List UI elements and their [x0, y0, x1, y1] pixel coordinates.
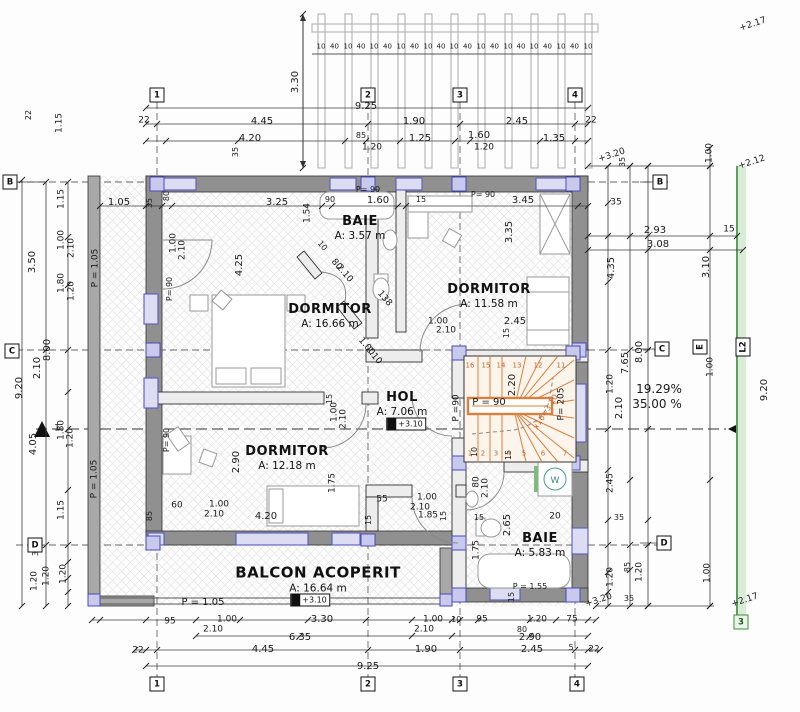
stair-tread-number: 1 [468, 451, 472, 458]
dim-label: 1.20 [43, 566, 52, 586]
dim-label: 1.00 [706, 143, 715, 163]
dim-label: 1.85 [418, 512, 438, 521]
room-label: DORMITORA: 11.58 m [447, 282, 531, 310]
room-label: BAIEA: 5.83 m [515, 531, 566, 559]
dim-label: 1.00 [417, 494, 437, 503]
pergola-dim-label: 10 [370, 44, 379, 51]
pergola-dim-label: 40 [463, 44, 472, 51]
room-label: BAIEA: 3.57 m [335, 214, 386, 242]
level-marker: +3.10 [290, 594, 330, 607]
room-label: DORMITORA: 12.18 m [245, 444, 329, 472]
dim-label: 80 [163, 191, 171, 201]
dim-label: 1.00 [217, 616, 237, 625]
level-marker: +3.10 [386, 418, 426, 431]
dim-label: P = 1.05 [92, 249, 101, 288]
dim-label: 15 [508, 592, 516, 602]
dim-label: 1.20 [362, 144, 382, 153]
dim-label: 35 [614, 514, 624, 522]
dim-label: 1 [54, 425, 60, 434]
dim-label: P = 90 [472, 398, 506, 408]
room-name: BAIE [335, 214, 386, 229]
room-area: A: 12.18 m [245, 460, 329, 472]
dim-label: 1.20 [607, 374, 616, 394]
room-label: HOLA: 7.06 m [377, 390, 428, 418]
dim-label: 2.10 [179, 240, 188, 260]
dim-label: 4.20 [239, 134, 261, 144]
dim-label: 3.50 [28, 251, 38, 273]
dim-label: 2.45 [607, 473, 616, 493]
dim-label: P= 90 [356, 186, 380, 194]
dim-label: P = 1.55 [513, 583, 547, 591]
dim-label: 15 [474, 514, 484, 522]
stair-tread-number: 4 [507, 451, 511, 458]
dim-label: 1.15 [58, 189, 67, 209]
dim-label: 1.20 [31, 571, 40, 591]
dim-label: 1.20 [474, 144, 494, 153]
dim-label: 35.00 % [632, 398, 682, 410]
pergola-dim-label: 10 [557, 44, 566, 51]
dim-label: 9.20 [760, 379, 770, 401]
dim-label: 2.93 [644, 226, 666, 236]
dim-label: 1.80 [58, 273, 67, 293]
grid-marker: 2 [361, 88, 376, 103]
dim-label: 3.35 [505, 221, 515, 243]
dim-label: 95 [476, 616, 487, 625]
dim-label: 1.20 [67, 428, 76, 448]
grid-marker: B [653, 175, 668, 190]
dim-label: 3.45 [512, 196, 534, 206]
dim-label: .10 [449, 616, 462, 624]
pergola-dim-label: 40 [490, 44, 499, 51]
boundary-line-green [736, 166, 746, 618]
grid-marker: 2 [361, 677, 376, 692]
grid-marker: 4 [570, 677, 585, 692]
grid-marker: D [657, 536, 672, 551]
dim-label: 1.15 [56, 113, 65, 133]
stair-tread-number: 14 [497, 363, 506, 370]
pergola-dim-label: 40 [410, 44, 419, 51]
stair-tread-number: 15 [482, 363, 491, 370]
dim-label: 3.30 [291, 71, 301, 93]
pergola-dim-label: 10 [397, 44, 406, 51]
pergola-dim-label: 10 [344, 44, 353, 51]
dim-label: 1.20 [68, 281, 77, 301]
grid-marker: 3 [453, 88, 468, 103]
room-area: A: 16.66 m [288, 318, 372, 330]
pergola-dim-label: 10 [317, 44, 326, 51]
stair-tread-number: 2 [481, 451, 485, 458]
dim-label: 19.29% [636, 383, 682, 395]
dim-label: 75 [566, 616, 577, 625]
pergola-dim-label: 40 [543, 44, 552, 51]
grid-marker: C [655, 342, 670, 357]
dim-label: 8.00 [635, 341, 645, 363]
dim-label: 1.75 [329, 473, 338, 493]
room-area: A: 11.58 m [447, 298, 531, 310]
dim-label: 9.25 [355, 102, 377, 112]
dim-label: 4.35 [607, 257, 617, 279]
room-area: A: 7.06 m [377, 406, 428, 418]
dim-label: 85 [356, 132, 366, 140]
dim-label: 4.20 [255, 512, 277, 522]
dim-label: P= 205 [558, 387, 567, 420]
dim-label: P = 1.05 [181, 598, 224, 608]
pergola-dim-label: 10 [530, 44, 539, 51]
dim-label: 2.10 [615, 397, 625, 419]
dim-label: 35 [232, 147, 240, 157]
bed [527, 277, 569, 345]
dim-label: 1.20 [607, 567, 616, 587]
dim-label: 15 [723, 226, 734, 235]
pergola-dim-label: 40 [437, 44, 446, 51]
dim-label: 2.10 [482, 478, 491, 498]
dim-label: 2.10 [68, 238, 77, 258]
dim-label: 22 [25, 110, 33, 120]
dim-label: 4.45 [251, 117, 273, 127]
room-name: HOL [377, 390, 428, 405]
grid-marker: D [28, 538, 43, 553]
dim-label: 1.20 [60, 564, 69, 584]
dim-label: 8.00 [43, 339, 53, 361]
pergola-dim-label: 40 [357, 44, 366, 51]
floor-plan: W [0, 0, 800, 712]
dim-label: 2.45 [521, 645, 543, 655]
dim-label: 22 [132, 647, 143, 656]
dim-label: P =90 [453, 394, 462, 421]
dim-label: 3.08 [647, 240, 669, 250]
dim-label: 1.00 [58, 230, 67, 250]
stair-tread-number: 12 [534, 363, 543, 370]
dim-label: 1.90 [403, 117, 425, 127]
grid-marker: 3 [453, 677, 468, 692]
dim-label: 22 [138, 117, 149, 126]
dim-label: 35 [146, 198, 154, 208]
pergola-dim-label: 10 [424, 44, 433, 51]
pergola-dim-label: 40 [570, 44, 579, 51]
dim-label: 55 [376, 496, 387, 505]
dim-label: 5 [568, 644, 573, 652]
dim-label: 2.10 [340, 409, 349, 429]
stair-tread-number: 5 [522, 451, 526, 458]
dim-label: 1.00 [423, 616, 443, 625]
grid-marker: B [3, 175, 18, 190]
dim-label: 9.25 [357, 662, 379, 672]
room-name: DORMITOR [288, 302, 372, 317]
dim-label: 90 [325, 196, 335, 204]
stair-tread-number: 6 [541, 451, 545, 458]
sink [466, 491, 478, 507]
dim-label: P= 90 [166, 277, 174, 301]
dim-label: 85 [624, 562, 632, 572]
room-label: DORMITORA: 16.66 m [288, 302, 372, 330]
dim-label: 7.65 [621, 352, 631, 374]
grid-marker: L2 [736, 338, 751, 357]
stair-tread-number: 13 [513, 363, 522, 370]
dim-label: 2.10 [436, 327, 456, 336]
dim-label: 1.00 [707, 357, 716, 377]
dim-label: 2.65 [503, 514, 513, 536]
grid-marker: 1 [150, 88, 165, 103]
dim-label: 2.10 [203, 626, 223, 635]
dim-label: 22 [588, 646, 599, 655]
dim-label: 35 [619, 157, 627, 167]
pergola-dim-label: 10 [504, 44, 513, 51]
dim-label: 35 [624, 595, 634, 603]
dim-label: 3.30 [311, 615, 333, 625]
dim-label: 20 [549, 513, 560, 522]
dim-label: 60 [171, 502, 182, 511]
dim-label: 35 [610, 199, 621, 208]
grid-marker: 3 [734, 615, 749, 630]
dim-label: 4.05 [29, 433, 39, 455]
dim-label: 6.35 [289, 633, 311, 643]
dim-label: 95 [164, 618, 175, 627]
dim-label: 1.20 [527, 616, 547, 625]
dim-label: 1.00 [209, 501, 229, 510]
room-name: BALCON ACOPERIT [235, 564, 401, 582]
dim-label: 4.25 [235, 254, 245, 276]
dim-label: 15 [503, 328, 511, 338]
dim-label: 1.75 [473, 540, 482, 560]
room-name: BAIE [515, 531, 566, 546]
dim-label: 1.15 [58, 500, 67, 520]
dim-label: 1.90 [415, 645, 437, 655]
dim-label: 2.10 [414, 626, 434, 635]
grid-marker: 1 [150, 677, 165, 692]
dim-label: 15 [416, 196, 426, 204]
dim-label: 2.45 [504, 317, 526, 327]
dim-label: 2.20 [508, 374, 518, 396]
dim-label: 9.20 [15, 377, 25, 399]
pergola-dim-label: 10 [584, 44, 593, 51]
dim-label: 2.90 [232, 451, 242, 473]
dim-label: P= 90 [163, 428, 171, 452]
room-label: BALCON ACOPERITA: 16.64 m [235, 564, 401, 595]
dim-label: P= 90 [471, 191, 495, 199]
dim-label: 22 [585, 117, 596, 126]
stair-tread-number: 11 [557, 363, 566, 370]
stair-tread-number: 16 [466, 363, 475, 370]
stair-tread-number: 3 [494, 451, 498, 458]
dim-label: 3.25 [266, 198, 288, 208]
dim-label: 1.25 [409, 134, 431, 144]
dim-label: 2.90 [519, 633, 541, 643]
pergola-dim-label: 40 [517, 44, 526, 51]
room-name: DORMITOR [447, 282, 531, 297]
grid-marker: 4 [568, 88, 583, 103]
dim-label: P = 1.05 [91, 460, 100, 499]
dim-label: 1.20 [636, 562, 645, 582]
pergola-dim-label: 10 [450, 44, 459, 51]
room-area: A: 5.83 m [515, 547, 566, 559]
pergola-dim-label: 40 [383, 44, 392, 51]
dim-label: 1.00 [704, 563, 713, 583]
floor-plan-svg: W [0, 0, 800, 712]
dim-label: 2.10 [204, 511, 224, 520]
dim-label: 4.45 [252, 645, 274, 655]
dim-label: 1.54 [304, 203, 313, 223]
stair-tread-number: 7 [563, 451, 567, 458]
dim-label: 85 [146, 511, 154, 521]
washing-machine-icon: W [551, 476, 560, 486]
dim-label: 15 [365, 515, 373, 525]
pergola-dim-label: 10 [477, 44, 486, 51]
grid-marker: E [693, 340, 708, 355]
dim-label: 1.05 [108, 198, 130, 208]
dim-label: 15 [440, 511, 448, 521]
room-area: A: 3.57 m [335, 230, 386, 242]
pergola-slats [300, 14, 598, 168]
pergola-dim-label: 40 [330, 44, 339, 51]
grid-marker: C [5, 344, 20, 359]
room-name: DORMITOR [245, 444, 329, 459]
dim-label: 1.35 [543, 134, 565, 144]
dim-label: 2.45 [506, 117, 528, 127]
dim-label: 1.60 [468, 131, 490, 141]
dim-label: 2.10 [33, 357, 43, 379]
dim-label: 3.10 [702, 256, 712, 278]
dim-label: 1.60 [367, 196, 389, 206]
